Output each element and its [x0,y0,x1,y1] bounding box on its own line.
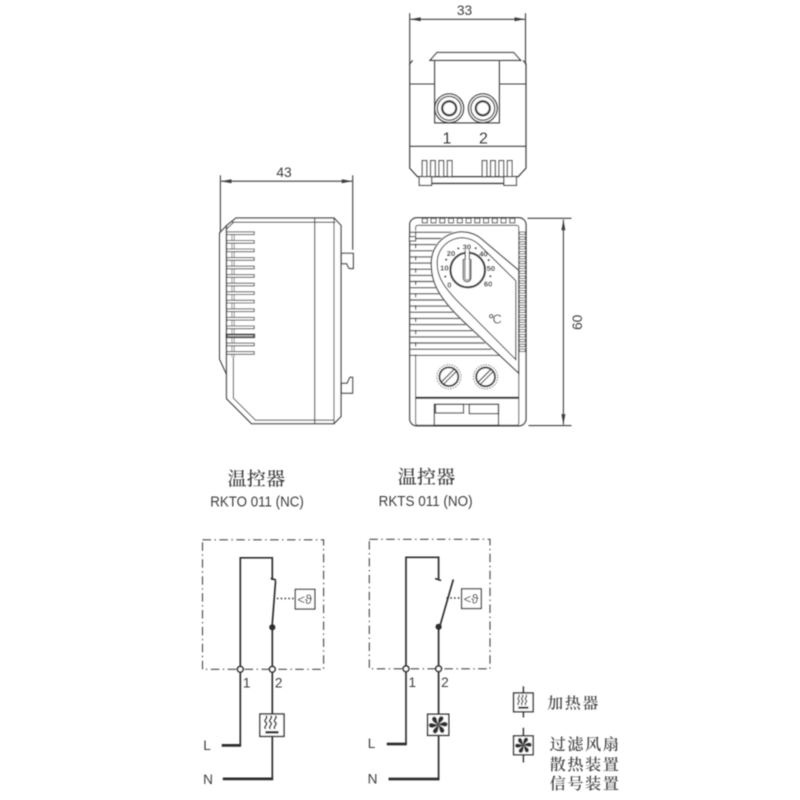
svg-text:C: C [493,313,502,327]
svg-text:RKTO 011 (NC): RKTO 011 (NC) [210,494,304,510]
svg-text:1: 1 [443,131,452,148]
svg-text:33: 33 [457,3,473,18]
svg-text:<ϑ: <ϑ [297,592,313,607]
svg-text:N: N [203,772,213,787]
svg-text:RKTS 011 (NO): RKTS 011 (NO) [379,494,473,510]
svg-text:20: 20 [447,249,455,258]
svg-text:60: 60 [570,314,585,330]
svg-text:1: 1 [409,675,417,690]
svg-text:0: 0 [447,281,451,290]
svg-text:2: 2 [275,675,283,690]
svg-text:2: 2 [441,675,449,690]
svg-text:<ϑ: <ϑ [464,592,480,607]
svg-text:1: 1 [243,675,251,690]
svg-text:L: L [368,736,376,751]
svg-text:N: N [368,772,378,787]
svg-text:60: 60 [484,280,492,289]
svg-text:L: L [203,738,211,753]
svg-text:43: 43 [276,165,292,180]
svg-text:40: 40 [479,250,487,259]
svg-text:30: 30 [463,243,471,252]
svg-text:2: 2 [479,131,488,148]
svg-text:10: 10 [440,264,448,273]
svg-text:50: 50 [487,264,495,273]
